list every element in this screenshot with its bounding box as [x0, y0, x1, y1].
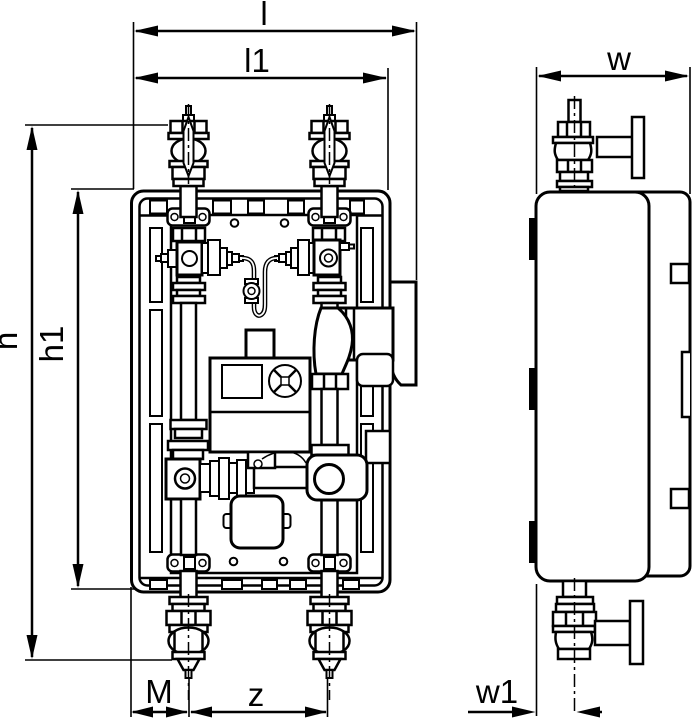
side-valve-bottom — [553, 578, 643, 712]
dimension-label-l1: l1 — [244, 42, 270, 79]
panel-hole — [281, 219, 289, 227]
pipe — [322, 500, 338, 555]
dimension-label-M: M — [145, 673, 173, 710]
dimension-z: z — [189, 648, 328, 718]
panel-hole — [230, 558, 238, 566]
dimension-label-h1: h1 — [33, 326, 70, 363]
side-view: w — [468, 40, 690, 718]
clip — [671, 489, 689, 508]
pipe — [181, 303, 196, 420]
dimension-label-l: l — [260, 0, 267, 32]
clip — [671, 264, 689, 283]
dimension-label-h: h — [0, 332, 24, 350]
pipe — [322, 389, 338, 445]
dimension-label-w1: w1 — [475, 673, 518, 710]
valve-handle-stem — [597, 137, 633, 157]
cover-front — [536, 192, 649, 581]
side-valve-top — [553, 96, 644, 200]
pump-dial — [269, 365, 301, 397]
dimension-label-w: w — [606, 40, 631, 77]
valve-handle-bar — [632, 117, 644, 178]
dimension-h1: h1 — [33, 189, 138, 589]
inline-fitting — [244, 279, 260, 303]
bracket-bottom-left — [168, 555, 210, 572]
bracket-bottom-right — [309, 555, 351, 572]
pump-station-dimension-drawing: l l1 h h1 M z — [0, 0, 693, 720]
panel-hole — [280, 558, 288, 566]
clip-recess — [682, 352, 690, 417]
pump-volute — [307, 455, 367, 500]
pipe — [181, 499, 196, 555]
pump-neck — [246, 330, 274, 358]
return-tee — [166, 459, 200, 499]
drawing-canvas: l l1 h h1 M z — [0, 0, 693, 720]
pipe-bend — [314, 308, 353, 374]
front-view: l l1 h h1 M z — [0, 0, 417, 718]
side-tab — [366, 431, 390, 463]
junction-box — [224, 496, 291, 548]
pump-display — [222, 365, 262, 398]
panel-hole — [231, 219, 239, 227]
horizontal-pipe — [254, 467, 308, 488]
dimension-label-z: z — [248, 676, 265, 713]
valve-handle-stem — [595, 621, 630, 645]
valve-handle-bar — [630, 601, 643, 664]
